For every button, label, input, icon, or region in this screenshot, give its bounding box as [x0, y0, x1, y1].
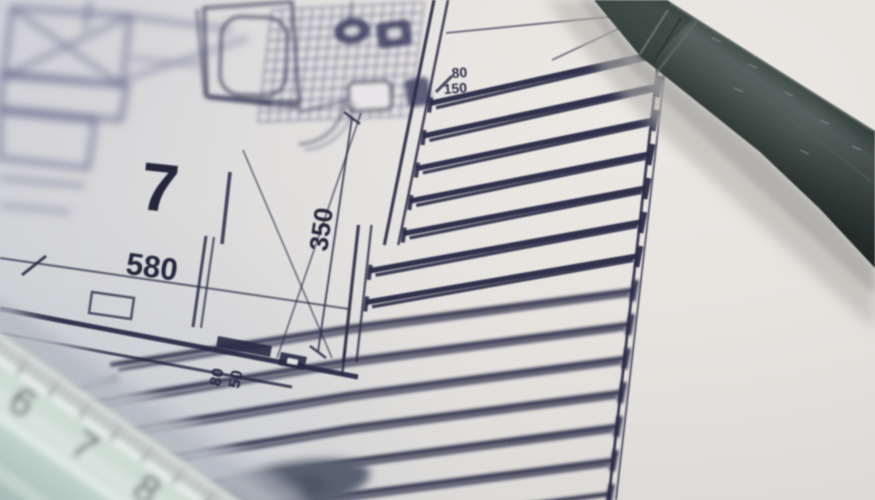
svg-text:7: 7	[137, 148, 183, 228]
svg-text:80: 80	[451, 64, 468, 81]
svg-text:350: 350	[303, 206, 339, 253]
svg-text:580: 580	[124, 246, 180, 288]
